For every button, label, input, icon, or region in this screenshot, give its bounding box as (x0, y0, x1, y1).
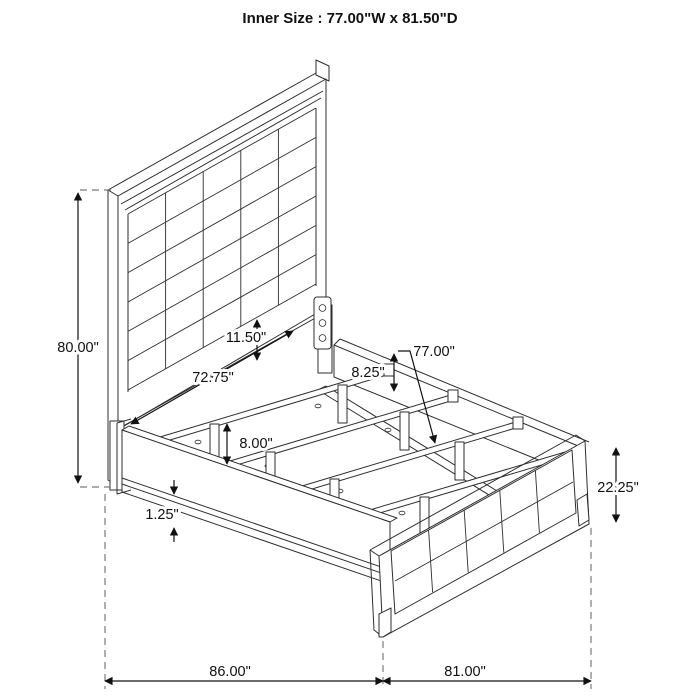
dim-label-overall-width: 81.00" (444, 664, 485, 680)
footboard-left-leg (379, 608, 391, 637)
footboard-front-face (379, 441, 589, 637)
dimension-diagram: 80.00" 11.50" 72.75" 8.25" 77.00" 8.00" (0, 0, 700, 700)
support-leg (338, 385, 347, 423)
dim-label-slat-length: 77.00" (413, 344, 454, 360)
dim-label-leg-height: 8.00" (239, 436, 272, 452)
dim-label-headboard-height: 80.00" (57, 340, 98, 356)
page-title: Inner Size : 77.00"W x 81.50"D (242, 10, 457, 27)
dim-label-overall-length: 86.00" (209, 664, 250, 680)
support-leg (400, 412, 409, 450)
dim-label-footboard-height: 22.25" (597, 480, 638, 496)
headboard-top-tab (316, 60, 329, 81)
support-leg (455, 442, 464, 480)
bed-line-drawing: 80.00" 11.50" 72.75" 8.25" 77.00" 8.00" (0, 0, 700, 700)
dim-label-cleat-length: 72.75" (192, 370, 233, 386)
dim-label-rail-height: 8.25" (351, 365, 384, 381)
dim-label-rail-lip: 1.25" (145, 507, 178, 523)
footboard-right-leg (577, 494, 589, 526)
dim-headboard-height: 80.00" (57, 190, 114, 487)
dim-overall-width: 81.00" (383, 664, 591, 681)
footboard (370, 435, 589, 637)
dim-footboard-height: 22.25" (597, 448, 638, 522)
dim-overall-length: 86.00" (105, 664, 383, 681)
rail-bracket (314, 297, 331, 349)
dim-label-panel-band: 11.50" (226, 330, 266, 346)
